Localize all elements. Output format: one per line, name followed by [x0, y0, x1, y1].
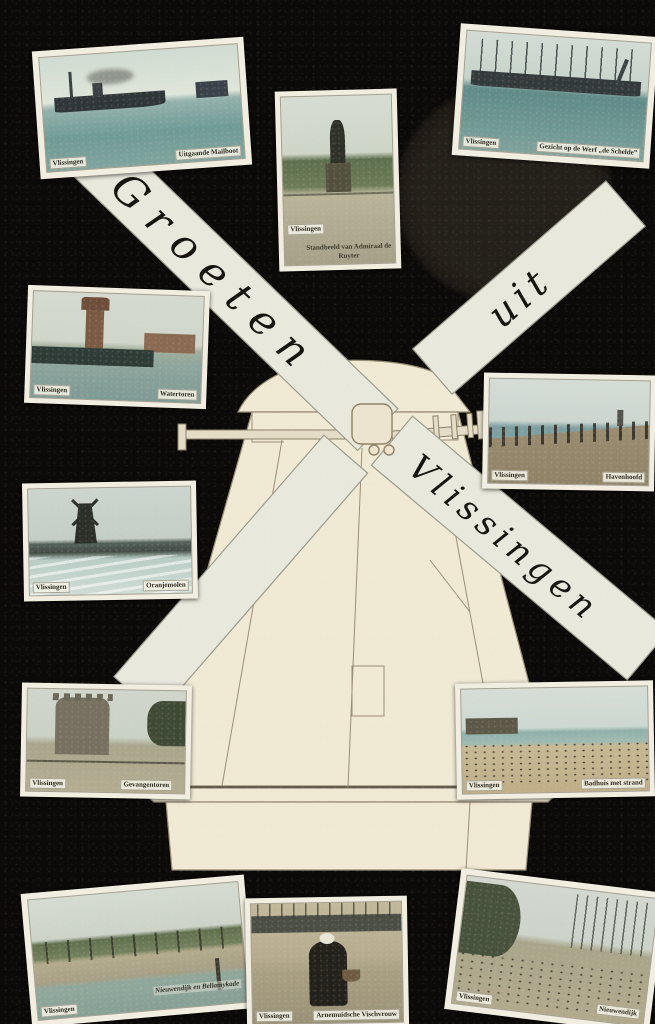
- photo-uitgaande-mailboot: Vlissingen Uitgaande Mailboot: [32, 37, 252, 179]
- beacon-silhouette: [617, 410, 624, 426]
- sail-uit: uit: [413, 181, 646, 394]
- ship-smoke: [86, 67, 134, 85]
- tree-trunks: [44, 926, 230, 964]
- photo-image-mailboot: Vlissingen Uitgaande Mailboot: [39, 44, 244, 172]
- boat-masts: [257, 902, 395, 919]
- photo-havenhoofd: Vlissingen Havenhoofd: [482, 373, 655, 492]
- photo-nieuwendijk-bellamykade: Vlissingen Nieuwendijk en Bellamykade: [21, 874, 256, 1024]
- postcard: Groeten uit Vlissingen: [0, 0, 655, 1024]
- photo-oranjemolen: Vlissingen Oranjemolen: [22, 480, 198, 601]
- tree-silhouette: [147, 701, 186, 747]
- photo-caption-label: Arnemuidsche Vischvrouw: [313, 1009, 400, 1022]
- tower-battlements: [53, 693, 113, 701]
- photo-standbeeld-de-ruyter: Vlissingen Standbeeld van Admiraal de Ru…: [275, 88, 402, 271]
- photo-caption-label: Havenhoofd: [603, 472, 646, 484]
- watertower-silhouette: [85, 303, 105, 350]
- bridge-arches: [31, 346, 154, 367]
- photo-nieuwendijk: Vlissingen Nieuwendijk: [444, 868, 655, 1024]
- photo-image-vischvrouw: Vlissingen Arnemuidsche Vischvrouw: [251, 902, 403, 1024]
- photo-image-oranjemolen: Vlissingen Oranjemolen: [28, 487, 192, 596]
- photo-arnemuidsche-vischvrouw: Vlissingen Arnemuidsche Vischvrouw: [245, 896, 409, 1024]
- photo-image-bellamykade: Vlissingen Nieuwendijk en Bellamykade: [28, 882, 248, 1020]
- photo-badhuis-met-strand: Vlissingen Badhuis met strand: [455, 680, 655, 799]
- photo-caption-label: Standbeeld van Admiraal de Ruyter: [305, 242, 393, 262]
- photo-place-label: Vlissingen: [491, 470, 528, 482]
- ship-mast: [68, 72, 73, 100]
- photo-image-watertoren: Vlissingen Watertoren: [30, 291, 204, 403]
- photo-image-gevangentoren: Vlissingen Gevangentoren: [26, 689, 186, 794]
- round-tower-silhouette: [55, 697, 110, 755]
- photo-place-label: Vlissingen: [466, 780, 503, 792]
- statue-pedestal: [325, 163, 351, 192]
- photo-caption-label: Uitgaande Mailboot: [175, 145, 241, 161]
- photo-place-label: Vlissingen: [33, 582, 70, 594]
- photo-place-label: Vlissingen: [462, 136, 499, 150]
- watertower-cap: [81, 297, 110, 311]
- photo-image-havenhoofd: Vlissingen Havenhoofd: [488, 379, 650, 486]
- photo-image-ruyter: Vlissingen Standbeeld van Admiraal de Ru…: [281, 95, 395, 266]
- photo-place-label: Vlissingen: [287, 223, 324, 235]
- photo-place-label: Vlissingen: [29, 778, 66, 790]
- photo-place-label: Vlissingen: [40, 1004, 78, 1018]
- photo-caption-label: Nieuwendijk en Bellamykade: [153, 979, 242, 996]
- bathhouse-silhouette: [465, 718, 517, 735]
- photo-image-nieuwendijk: Vlissingen Nieuwendijk: [452, 876, 655, 1024]
- tree-mass: [458, 881, 524, 959]
- photo-watertoren: Vlissingen Watertoren: [24, 285, 210, 409]
- photo-gevangentoren: Vlissingen Gevangentoren: [20, 683, 192, 800]
- photo-image-badhuis: Vlissingen Badhuis met strand: [461, 686, 649, 793]
- photo-image-werf: Vlissingen Gezicht op de Werf „de Scheld…: [459, 31, 651, 162]
- photo-werf-de-schelde: Vlissingen Gezicht op de Werf „de Scheld…: [452, 23, 655, 168]
- basket: [342, 970, 360, 982]
- photo-caption-label: Watertoren: [157, 388, 198, 400]
- photo-caption-label: Oranjemolen: [143, 580, 189, 592]
- photo-caption-label: Gevangentoren: [120, 779, 172, 791]
- photo-place-label: Vlissingen: [49, 156, 86, 170]
- photo-place-label: Vlissingen: [256, 1011, 293, 1023]
- photo-place-label: Vlissingen: [33, 384, 70, 396]
- ship-masts: [571, 894, 650, 956]
- fence-line: [283, 192, 393, 197]
- photo-caption-label: Badhuis met strand: [581, 777, 646, 789]
- windmill-base: [166, 802, 532, 870]
- sailboat-silhouette: [196, 80, 229, 98]
- ship-funnel: [93, 82, 104, 97]
- photo-caption-label: Gezicht op de Werf „de Schelde”: [536, 141, 641, 159]
- statue-figure: [330, 119, 346, 166]
- railing-line: [27, 760, 185, 765]
